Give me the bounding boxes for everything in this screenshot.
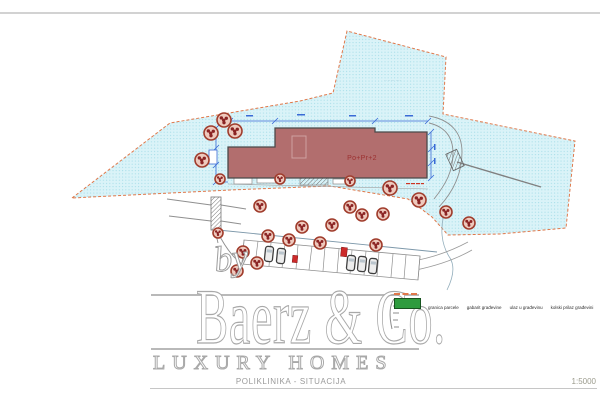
tree-icon [326,219,338,231]
legend-item-label: ulaz u građevinu [510,305,543,310]
watermark-tagline: LUXURY HOMES [153,353,394,373]
scale-label: 1:5000 [556,377,596,386]
tree-icon [345,176,355,186]
access-marks [406,183,424,184]
tree-icon [217,113,231,127]
tree-icon [377,208,389,220]
tree-icon [215,174,225,184]
tree-icon [463,217,475,229]
tree-icon [356,209,368,221]
tree-icon [344,201,356,213]
drawing-title: POLIKLINIKA - SITUACIJA [191,377,391,386]
watermark-by: by [212,238,250,277]
tree-icon [412,193,426,207]
parcel-boundary-swatch [394,293,417,295]
tree-icon [213,228,223,238]
tree-icon [254,200,266,212]
tree-icon [204,126,218,140]
site-plan-page: ·· ····· ···· [0,0,600,400]
tree-icon [228,124,242,138]
tree-icon [383,181,397,195]
page-bottom-rule [150,388,597,389]
car-icon [264,246,274,262]
car-icon [346,255,356,271]
legend-item-label: granica parcele [428,305,459,310]
car-icon [368,258,378,274]
car-icon [357,256,367,272]
legend-labels: granica parcelegabarit građevineulaz u g… [428,305,593,310]
legend-green-swatch [394,298,421,309]
tree-icon [251,257,263,269]
tree-icon [262,230,274,242]
tree-icon [314,237,326,249]
car-icon [276,248,286,264]
building-label: Po+Pr+2 [347,155,377,162]
tree-icon [283,234,295,246]
tree-icon [440,206,452,218]
legend-item-label: gabarit građevine [467,305,502,310]
legend: granica parcelegabarit građevineulaz u g… [385,288,597,334]
tree-icon [370,239,382,251]
tree-icon [296,221,308,233]
parcel-annotation: ·· ····· ···· [384,78,401,83]
crosswalk-hatch [211,197,221,230]
legend-item-label: kolski prilaz građevini [551,305,594,310]
red-marker [341,247,348,257]
tree-icon [195,153,209,167]
red-marker [292,255,298,262]
tree-icon [275,174,285,184]
